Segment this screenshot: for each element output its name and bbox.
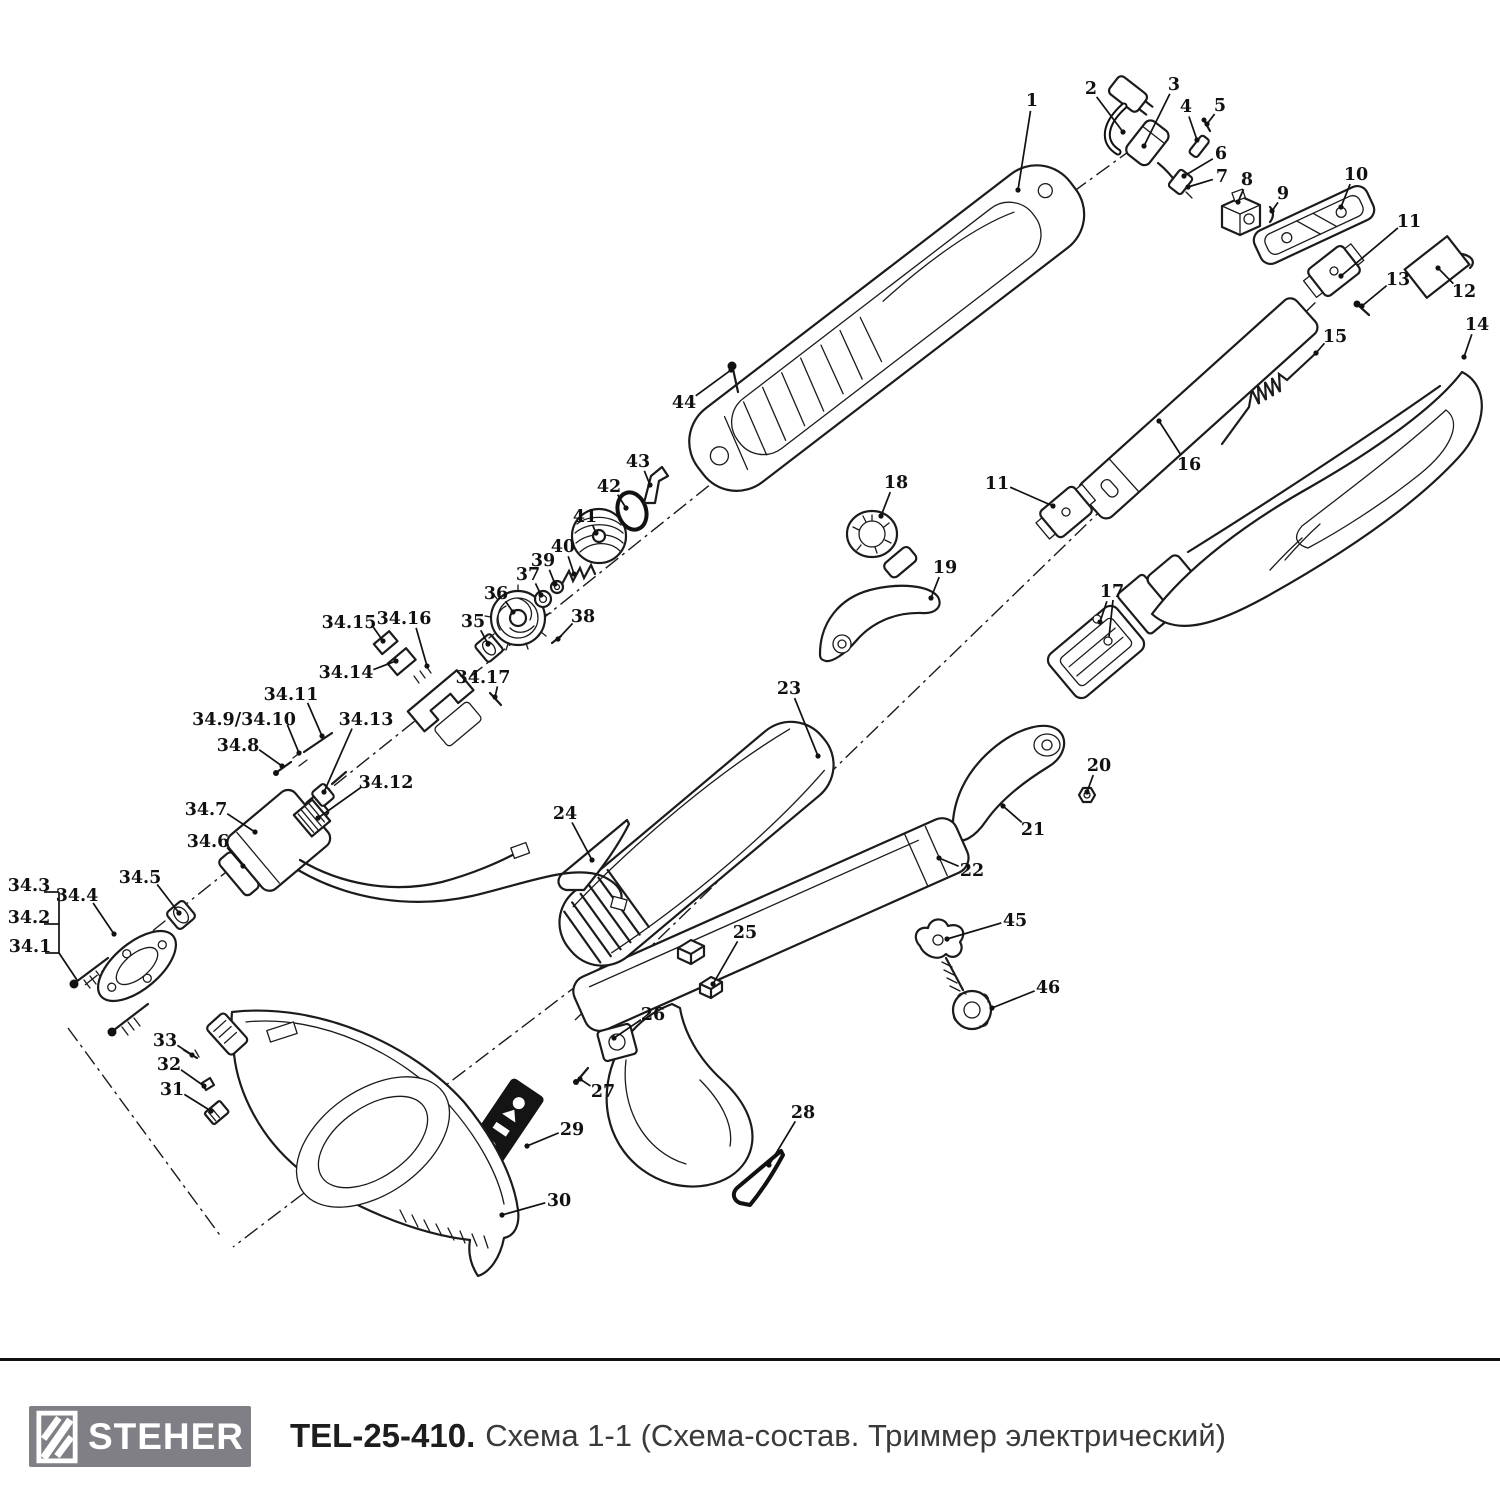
leader-dot-33-33: [189, 1052, 194, 1057]
leader-dot-36-54: [510, 609, 515, 614]
leader-dot-5-4: [1204, 121, 1209, 126]
sheet-title: TEL-25-410. Схема 1-1 (Схема-состав. Три…: [290, 1398, 1226, 1474]
part-label-32-32: 32: [157, 1055, 181, 1075]
leader-dot-1-0: [1015, 187, 1020, 192]
part-label-2-1: 2: [1085, 79, 1097, 99]
leader-32-32: [181, 1070, 204, 1086]
leader-dot-24-24: [589, 857, 594, 862]
part-label-8-7: 8: [1241, 170, 1253, 190]
part-label-45-35: 45: [1003, 911, 1027, 931]
leader-dot-23-23: [815, 753, 820, 758]
leader-dot-6-5: [1181, 173, 1186, 178]
part-label-33-33: 33: [153, 1031, 177, 1051]
part-label-16-15: 16: [1177, 455, 1201, 475]
part-label-13-12: 13: [1386, 270, 1410, 290]
exploded-view-canvas: 1234567891011121314151611171819202122232…: [0, 0, 1500, 1360]
part-label-34.2-38: 34.2: [8, 908, 51, 928]
leader-dot-34.9/34.10-45: [296, 750, 301, 755]
part-34-motor-assembly: [70, 631, 628, 1036]
part-label-27-27: 27: [591, 1082, 615, 1102]
leader-dot-44-34: [728, 367, 733, 372]
leader-dot-34.7-43: [252, 829, 257, 834]
leader-dot-32-32: [201, 1083, 206, 1088]
part-18-knob: [847, 511, 918, 579]
leader-dot-13-12: [1359, 303, 1364, 308]
leader-dot-15-14: [1313, 350, 1318, 355]
leader-21-21: [1003, 806, 1022, 822]
leader-dot-35-53: [485, 641, 490, 646]
leader-dot-3-2: [1141, 143, 1146, 148]
part-45-wing-bolt: [916, 919, 963, 991]
part-4-clip: [1188, 135, 1209, 158]
leader-dot-34.11-46: [319, 733, 324, 738]
part-label-43-61: 43: [626, 452, 650, 472]
leader-dot-30-30: [499, 1212, 504, 1217]
leader-dot-40-58: [571, 571, 576, 576]
part-label-14-13: 14: [1465, 315, 1489, 335]
part-1-upper-housing: [672, 148, 1101, 507]
footer-divider: [0, 1358, 1500, 1361]
part-label-18-18: 18: [884, 473, 908, 493]
part-label-15-14: 15: [1323, 327, 1347, 347]
part-label-9-8: 9: [1277, 184, 1289, 204]
part-label-1-0: 1: [1026, 91, 1038, 111]
brand-name: STEHER: [88, 1416, 244, 1458]
leader-dot-12-11: [1435, 265, 1440, 270]
leader-11-16: [1010, 487, 1053, 506]
part-label-34.8-44: 34.8: [217, 736, 260, 756]
leader-29-29: [527, 1133, 559, 1146]
leader-dot-19-19: [928, 595, 933, 600]
leader-dot-34.16-51: [424, 663, 429, 668]
leader-34.11-46: [308, 703, 322, 736]
part-label-11-10: 11: [1397, 212, 1421, 232]
part-31-bolt: [204, 1100, 229, 1124]
footer: STEHER TEL-25-410. Схема 1-1 (Схема-сост…: [0, 1398, 1500, 1478]
leader-dot-9-8: [1269, 208, 1274, 213]
leader-dot-34.6-42: [240, 863, 245, 868]
leader-dot-7-6: [1185, 184, 1190, 189]
leader-dot-41-59: [593, 530, 598, 535]
leader-dot-17-17: [1097, 619, 1102, 624]
part-46-star-knob: [953, 991, 991, 1029]
leader-34.16-51: [416, 628, 427, 666]
leader-13-12: [1362, 286, 1387, 306]
part-label-34.14-49: 34.14: [319, 663, 374, 683]
steher-logo-icon: [36, 1410, 78, 1464]
part-label-40-58: 40: [551, 537, 575, 557]
part-label-31-31: 31: [160, 1080, 184, 1100]
leader-dot-28-28: [766, 1162, 771, 1167]
leader-dot-42-60: [623, 505, 628, 510]
part-label-34.16-51: 34.16: [377, 609, 432, 629]
leader-dot-4-3: [1194, 137, 1199, 142]
leader-dot-8-7: [1235, 199, 1240, 204]
part-label-26-26: 26: [641, 1005, 665, 1025]
leader-4-3: [1189, 116, 1197, 140]
part-label-5-4: 5: [1214, 96, 1226, 116]
part-label-28-28: 28: [791, 1103, 815, 1123]
leader-dot-34.12-47: [315, 815, 320, 820]
part-label-29-29: 29: [560, 1120, 584, 1140]
leader-dot-2-1: [1120, 129, 1125, 134]
leader-24-24: [572, 823, 592, 860]
leader-dot-27-27: [577, 1076, 582, 1081]
part-label-6-5: 6: [1215, 144, 1227, 164]
part-label-24-24: 24: [553, 804, 577, 824]
part-label-34.7-43: 34.7: [185, 800, 228, 820]
part-label-35-53: 35: [461, 612, 485, 632]
leader-dot-34.15-50: [380, 638, 385, 643]
leader-dot-16-15: [1156, 418, 1161, 423]
leader-dot-29-29: [524, 1143, 529, 1148]
leader-dot-46-36: [989, 1005, 994, 1010]
part-label-22-22: 22: [960, 861, 984, 881]
leader-dot-25-25: [710, 981, 715, 986]
part-label-46-36: 46: [1036, 978, 1060, 998]
leader-dot-31-31: [208, 1108, 213, 1113]
leader-dot-18-18: [878, 513, 883, 518]
leader-34.4-40: [93, 903, 114, 934]
leader-dot-38-56: [555, 636, 560, 641]
part-label-3-2: 3: [1168, 75, 1180, 95]
leader-dot-11-10: [1338, 273, 1343, 278]
leader-6-5: [1184, 159, 1213, 176]
leader-dot-45-35: [944, 936, 949, 941]
leader-dot-14-13: [1461, 354, 1466, 359]
part-label-20-20: 20: [1087, 756, 1111, 776]
part-17-grille: [1044, 602, 1147, 701]
part-label-34.15-50: 34.15: [322, 613, 377, 633]
part-label-34.3-39: 34.3: [8, 876, 51, 896]
part-label-42-60: 42: [597, 477, 621, 497]
part-label-11-16: 11: [985, 474, 1009, 494]
leader-18-18: [881, 492, 890, 516]
leader-extra-4: [59, 953, 77, 980]
part-label-19-19: 19: [933, 558, 957, 578]
leader-dot-34.13-48: [321, 789, 326, 794]
part-30-guard: [206, 1011, 519, 1276]
part-label-10-9: 10: [1344, 165, 1368, 185]
part-label-23-23: 23: [777, 679, 801, 699]
part-label-34.934.10-45: 34.9/34.10: [192, 710, 296, 730]
part-label-34.5-41: 34.5: [119, 868, 162, 888]
part-label-12-11: 12: [1452, 282, 1476, 302]
leader-dot-26-26: [611, 1035, 616, 1040]
part-label-34.1-37: 34.1: [9, 937, 52, 957]
part-label-34.13-48: 34.13: [339, 710, 394, 730]
part-label-34.4-40: 34.4: [56, 886, 99, 906]
leader-dot-34.17-52: [492, 694, 497, 699]
leader-dot-43-61: [647, 482, 652, 487]
part-label-34.11-46: 34.11: [264, 685, 319, 705]
part-label-34.17-52: 34.17: [456, 668, 511, 688]
leader-dot-20-20: [1084, 789, 1089, 794]
leader-46-36: [992, 991, 1035, 1008]
part-21-handle-arm: [953, 726, 1065, 841]
part-11-clamp-upper: [1300, 239, 1368, 303]
part-label-30-30: 30: [547, 1191, 571, 1211]
model-number: TEL-25-410.: [290, 1417, 475, 1455]
part-16-boom-tube: [1076, 295, 1322, 522]
leader-34.5-41: [157, 884, 179, 913]
leader-dot-22-22: [936, 855, 941, 860]
leader-34.8-44: [259, 750, 282, 766]
part-label-17-17: 17: [1100, 582, 1124, 602]
leader-dot-37-55: [538, 592, 543, 597]
part-label-7-6: 7: [1216, 167, 1228, 187]
part-label-44-34: 44: [672, 393, 696, 413]
leader-14-13: [1464, 334, 1472, 357]
leader-dot-34.14-49: [393, 658, 398, 663]
part-label-34.6-42: 34.6: [187, 832, 230, 852]
part-label-25-25: 25: [733, 923, 757, 943]
part-label-41-59: 41: [573, 507, 597, 527]
leader-dot-34.5-41: [176, 910, 181, 915]
part-label-21-21: 21: [1021, 820, 1045, 840]
leader-dot-21-21: [1000, 803, 1005, 808]
steher-logo: STEHER: [29, 1406, 251, 1467]
leader-dot-10-9: [1338, 204, 1343, 209]
leader-dot-39-57: [552, 581, 557, 586]
part-label-4-3: 4: [1180, 97, 1192, 117]
sheet-subtitle: Схема 1-1 (Схема-состав. Триммер электри…: [485, 1418, 1226, 1454]
parts-diagram-page: { "footer": { "brand": "STEHER", "model"…: [0, 0, 1500, 1500]
part-19-hanger: [820, 586, 940, 661]
part-label-34.12-47: 34.12: [359, 773, 414, 793]
part-label-38-56: 38: [571, 607, 595, 627]
leader-33-33: [177, 1045, 192, 1055]
part-label-36-54: 36: [484, 584, 508, 604]
leader-dot-11-16: [1050, 503, 1055, 508]
leader-dot-34.4-40: [111, 931, 116, 936]
leader-dot-34.8-44: [279, 763, 284, 768]
leader-31-31: [184, 1094, 211, 1111]
